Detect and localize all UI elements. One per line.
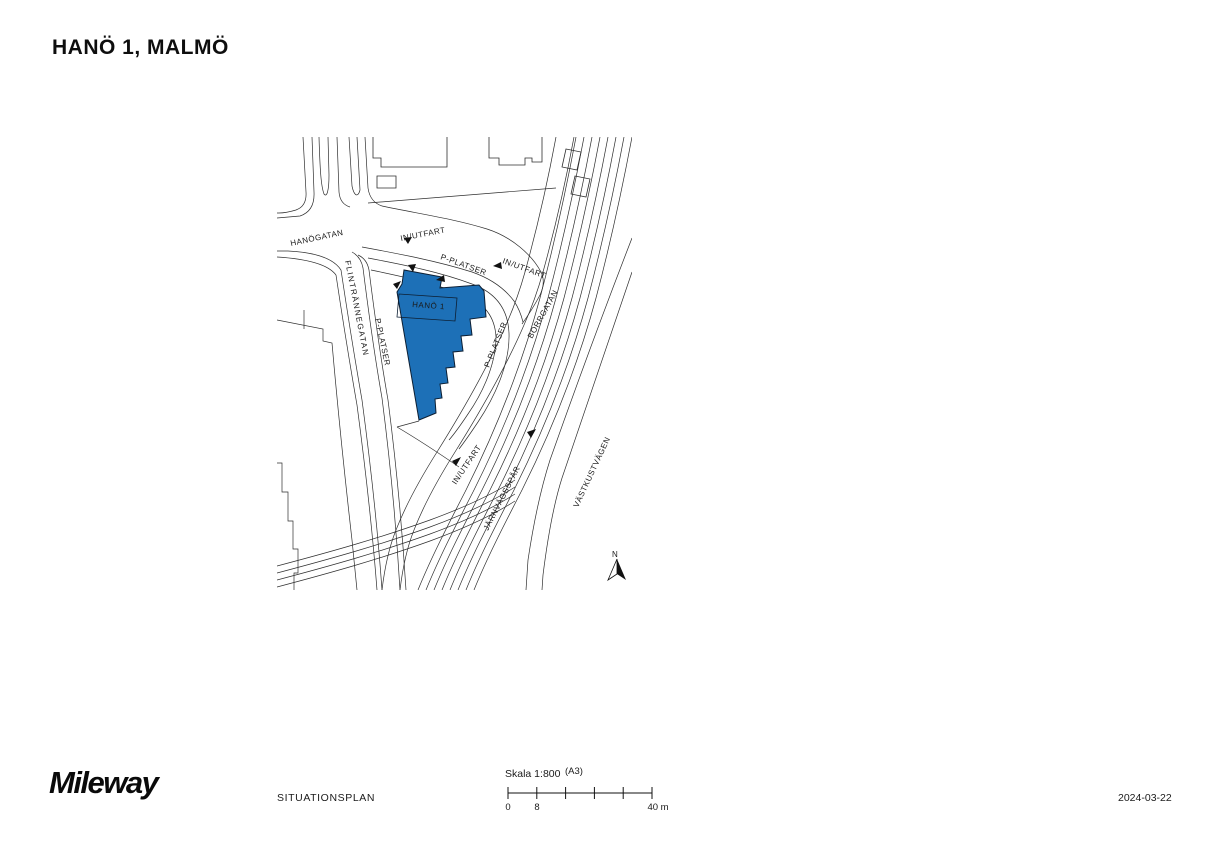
road-label-vastkustvagen: VÄSTKUSTVÄGEN [572,435,613,508]
north-arrow-dark-half [617,559,626,580]
page-title: HANÖ 1, MALMÖ [52,36,229,60]
road-label-in-utfart-top: IN/UTFART [400,225,447,243]
neighbor-buildings [373,137,590,197]
north-label: N [612,550,618,559]
building-hano1: HANÖ 1 [397,270,486,420]
road-label-in-utfart-east: IN/UTFART [501,256,547,280]
scale-bar-line [508,787,652,799]
road-label-p-platser-east: P-PLATSER [483,321,509,369]
scale-tick-end: 40 m [647,802,668,813]
road-label-jarnvagsspar: JÄRNVÄGSSPÅR [482,465,522,532]
scale-label: Skala 1:800 [505,768,561,780]
road-label-hanogatan: HANÖGATAN [290,228,345,248]
arrow-icon [452,457,461,466]
plan-sheet: HANÖ 1, MALMÖ [0,0,1220,854]
arrow-icon [493,262,502,269]
arrow-icon [527,429,536,438]
building-footprint [397,270,486,420]
north-arrow-light-half [608,559,617,580]
road-labels: HANÖGATAN IN/UTFART P-PLATSER IN/UTFART … [290,225,613,531]
drawing-title: SITUATIONSPLAN [277,792,375,804]
site-plan-map: HANÖ 1 HANÖGATAN IN/UTFART P-PLATSER IN/… [277,137,632,590]
north-arrow-icon: N [608,550,626,580]
mileway-logo: Mileway [49,765,157,801]
scale-tick-start: 0 [505,802,510,813]
drawing-date: 2024-03-22 [1118,792,1172,804]
paper-size-label: (A3) [565,766,583,777]
scale-tick-mid: 8 [534,802,539,813]
road-label-borrgatan: BORRGATAN [526,288,560,340]
scale-bar: Skala 1:800 (A3) 0 8 40 m [500,763,680,815]
